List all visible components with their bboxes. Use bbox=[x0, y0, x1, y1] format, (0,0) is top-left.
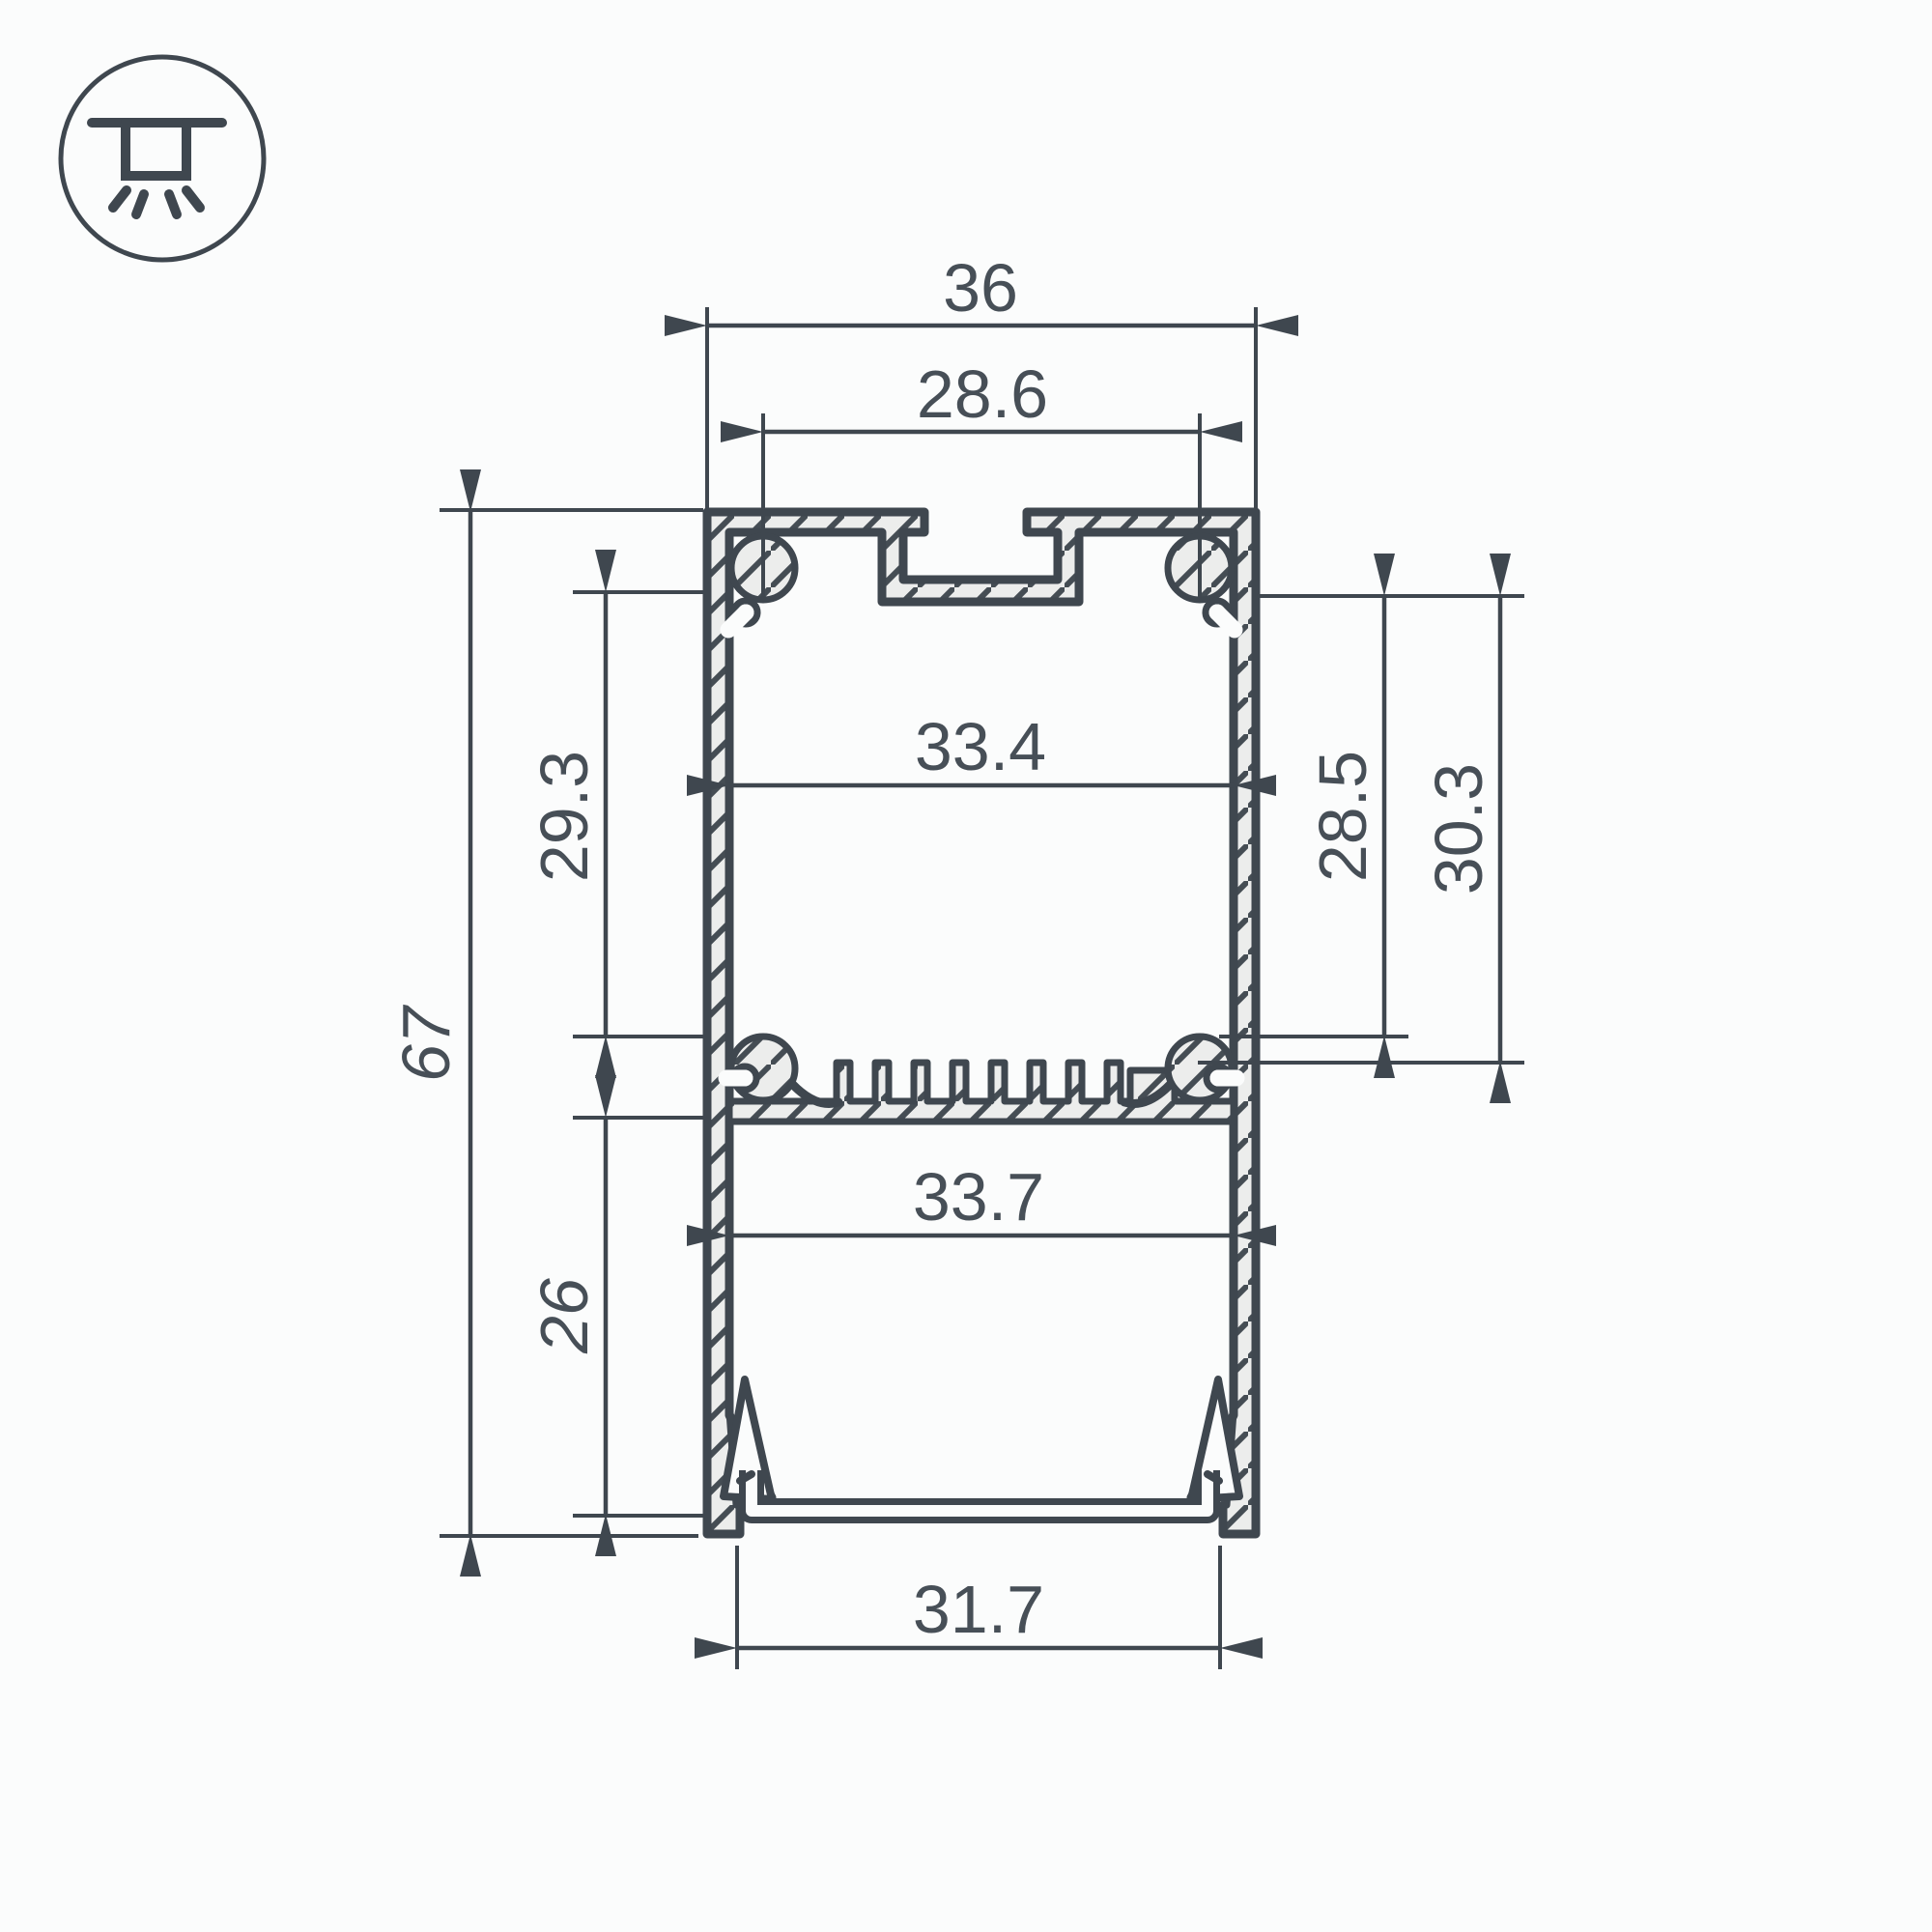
dim-label-lower-chamber-height: 26 bbox=[526, 1278, 602, 1354]
dim-label-total-height: 67 bbox=[388, 1004, 464, 1082]
dim-label-slot-spacing: 28.6 bbox=[917, 356, 1048, 432]
dim-label-lower-inner-width: 33.7 bbox=[913, 1159, 1044, 1235]
technical-drawing: 36 28.6 33.4 33.7 31.7 67 29.3 26 28.5 3… bbox=[0, 0, 1932, 1932]
dim-label-right-outer-height: 30.3 bbox=[1421, 763, 1496, 895]
dim-label-upper-inner-width: 33.4 bbox=[915, 709, 1046, 784]
dim-label-bottom-opening-width: 31.7 bbox=[913, 1572, 1044, 1647]
dim-label-upper-chamber-height: 29.3 bbox=[526, 751, 602, 882]
dim-label-right-inner-height: 28.5 bbox=[1305, 751, 1380, 882]
dim-label-total-width: 36 bbox=[943, 250, 1018, 326]
